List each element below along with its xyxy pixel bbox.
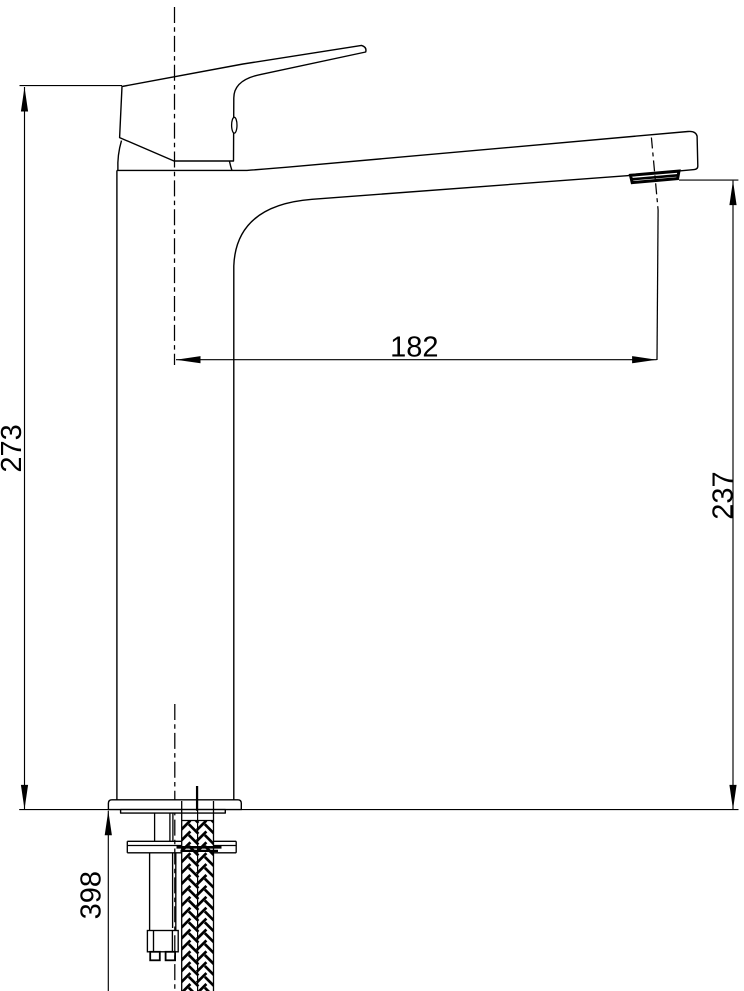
- svg-text:182: 182: [390, 331, 438, 363]
- svg-text:273: 273: [0, 424, 28, 472]
- svg-text:237: 237: [707, 471, 739, 519]
- svg-text:398: 398: [76, 871, 108, 919]
